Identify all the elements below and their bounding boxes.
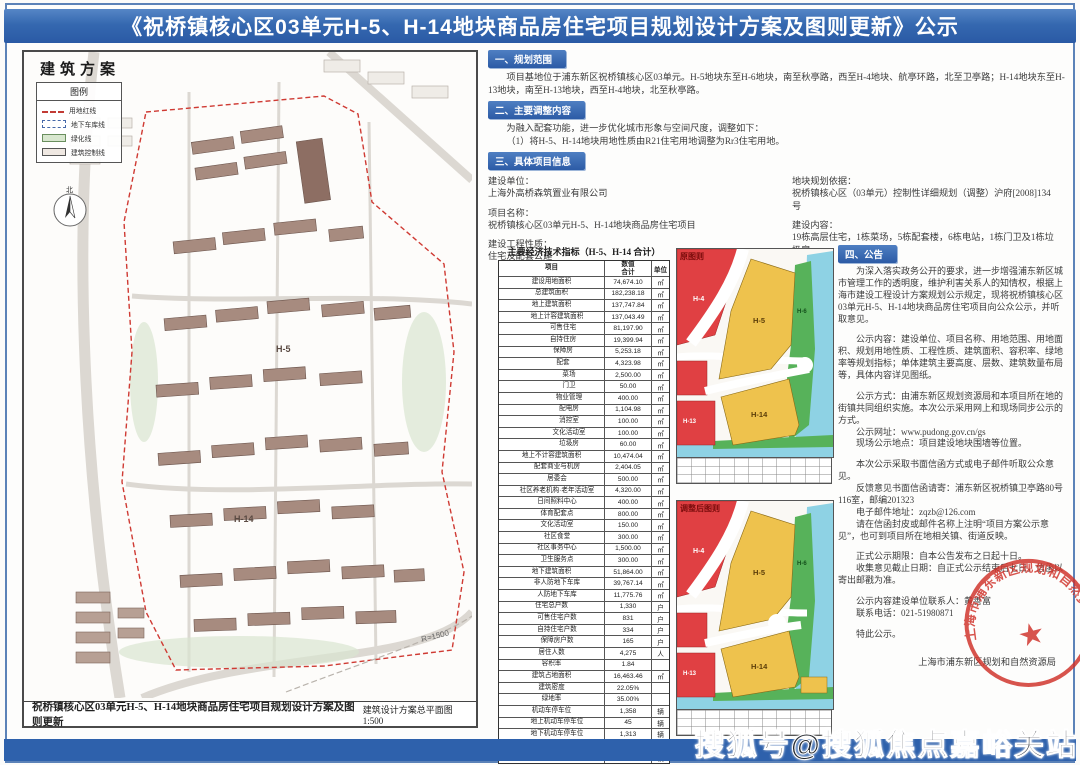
section2-heading: 二、主要调整内容 — [488, 101, 585, 119]
svg-text:H-6: H-6 — [797, 561, 807, 567]
row-unit: ㎡ — [652, 578, 669, 589]
table-row: 保障房 5,253.18 ㎡ — [499, 347, 669, 359]
row-value: 1,500.00 — [605, 544, 652, 555]
row-value: 74,674.10 — [605, 277, 652, 288]
row-unit: ㎡ — [652, 555, 669, 566]
row-value: 81,197.90 — [605, 323, 652, 334]
section2-line2: （1）将H-5、H-14地块用地性质由R21住宅用地调整为Rr3住宅用地。 — [488, 135, 1066, 148]
row-item: 配套 — [499, 358, 605, 369]
table-row: 地上建筑面积 137,747.84 ㎡ — [499, 300, 669, 312]
row-value: 22.05% — [605, 683, 652, 694]
info-value: 祝桥镇核心区（03单元）控制性详细规划（调整）沪府[2008]134号 — [792, 187, 1054, 212]
table-row: 配电房 1,104.98 ㎡ — [499, 405, 669, 417]
table-row: 自持住宅户数 334 户 — [499, 625, 669, 637]
info-item: 建设单位： 上海外高桥森筑置业有限公司 — [488, 173, 788, 199]
row-value: 50.00 — [605, 381, 652, 392]
row-item: 地上不计容建筑面积 — [499, 451, 605, 462]
row-unit: ㎡ — [652, 509, 669, 520]
table-row: 菜场 2,500.00 ㎡ — [499, 370, 669, 382]
table-row: 体育配套点 800.00 ㎡ — [499, 509, 669, 521]
legend-item: 绿化线 — [37, 129, 121, 143]
row-unit: ㎡ — [652, 405, 669, 416]
row-item: 地上机动车停车位 — [499, 718, 605, 729]
row-unit: 户 — [652, 602, 669, 613]
svg-text:H-5: H-5 — [753, 316, 765, 325]
row-value: 2,404.05 — [605, 463, 652, 474]
table-row: 建设用地面积 74,674.10 ㎡ — [499, 277, 669, 289]
row-unit: ㎡ — [652, 532, 669, 543]
row-value: 4,323.98 — [605, 358, 652, 369]
col-item: 项目 — [499, 261, 605, 276]
svg-text:H-4: H-4 — [693, 548, 704, 555]
info-label: 建设单位： — [488, 173, 788, 187]
row-item: 消控室 — [499, 416, 605, 427]
row-item: 社区养老机构·老年活动室 — [499, 486, 605, 497]
issuing-authority: 上海市浦东新区规划和自然资源局 — [838, 654, 1066, 668]
row-value: 100.00 — [605, 428, 652, 439]
poster-title: 《祝桥镇核心区03单元H-5、H-14地块商品房住宅项目规划设计方案及图则更新》… — [121, 11, 959, 41]
row-value: 100.00 — [605, 416, 652, 427]
row-value: 16,463.46 — [605, 671, 652, 682]
svg-text:H-13: H-13 — [683, 419, 697, 425]
info-label: 项目名称： — [488, 205, 788, 219]
row-item: 绿地率 — [499, 694, 605, 705]
row-unit: ㎡ — [652, 370, 669, 381]
table-row: 建筑密度 22.05% — [499, 683, 669, 695]
table-row: 门卫 50.00 ㎡ — [499, 381, 669, 393]
table-row: 社区养老机构·老年活动室 4,320.00 ㎡ — [499, 486, 669, 498]
row-unit: ㎡ — [652, 277, 669, 288]
notice-paragraph: 公示内容建设单位联系人：黄善富 — [838, 596, 1066, 608]
row-unit: ㎡ — [652, 312, 669, 323]
row-unit: ㎡ — [652, 463, 669, 474]
table-row: 居委会 500.00 ㎡ — [499, 474, 669, 486]
row-value: 500.00 — [605, 474, 652, 485]
section-adjustment: 二、主要调整内容 为融入配套功能，进一步优化城市形象与空间尺度，调整如下： （1… — [488, 101, 1066, 148]
svg-text:H-6: H-6 — [797, 309, 807, 315]
row-unit: ㎡ — [652, 358, 669, 369]
section1-heading: 一、规划范围 — [488, 50, 566, 68]
row-unit: ㎡ — [652, 323, 669, 334]
row-item: 物业管理 — [499, 393, 605, 404]
row-value: 182,238.18 — [605, 289, 652, 300]
row-item: 菜场 — [499, 370, 605, 381]
col-value: 数值 合计 — [605, 261, 652, 276]
svg-text:H-5: H-5 — [276, 344, 291, 354]
table-row: 绿地率 35.00% — [499, 694, 669, 706]
zoning-map-adjusted: H-4 H-5 H-14 H-6 H-13 调整后图则 — [676, 500, 834, 710]
watermark-text: 搜狐号@搜狐焦点嘉峪关站 — [695, 720, 1078, 764]
notice-paragraph: 公示内容：建设单位、项目名称、用地范围、用地面积、规划用地性质、工程性质、建筑面… — [838, 334, 1066, 382]
row-value: 4,320.00 — [605, 486, 652, 497]
notice-paragraph: 正式公示期限：自本公告发布之日起十日。 — [838, 551, 1066, 563]
text-sections: 一、规划范围 项目基地位于浦东新区祝桥镇核心区03单元。H-5地块东至H-6地块… — [488, 50, 1066, 272]
row-unit: ㎡ — [652, 590, 669, 601]
table-row: 可售住宅 81,197.90 ㎡ — [499, 323, 669, 335]
row-value: 334 — [605, 625, 652, 636]
row-item: 人防地下车库 — [499, 590, 605, 601]
table-row: 自持住房 19,399.94 ㎡ — [499, 335, 669, 347]
row-item: 机动车停车位 — [499, 706, 605, 717]
row-item: 建筑密度 — [499, 683, 605, 694]
row-value: 150.00 — [605, 520, 652, 531]
row-item: 建筑占地面积 — [499, 671, 605, 682]
row-unit: 户 — [652, 636, 669, 647]
row-item: 文化活动室 — [499, 428, 605, 439]
zoning-map-original-drawing: H-4 H-5 H-14 H-6 H-13 原图则 — [677, 249, 833, 457]
table-row: 容积率 1.84 — [499, 660, 669, 672]
table-row: 可售住宅户数 831 户 — [499, 613, 669, 625]
svg-text:H-4: H-4 — [693, 296, 704, 303]
notice-paragraph: 公示方式：由浦东新区规划资源局和本项目所在地的街镇共同组织实施。本次公示采用网上… — [838, 391, 1066, 427]
row-unit — [652, 683, 669, 694]
row-item: 建设用地面积 — [499, 277, 605, 288]
notice-paragraph: 请在信函封皮或邮件名称上注明“项目方案公示意见”，也可到项目所在地相关镇、街道反… — [838, 519, 1066, 543]
svg-text:原图则: 原图则 — [680, 251, 704, 261]
indicator-table-column: 主要经济技术指标（H-5、H-14 合计） 项目 数值 合计 单位 建设用地面积… — [498, 245, 670, 764]
section1-body: 项目基地位于浦东新区祝桥镇核心区03单元。H-5地块东至H-6地块，南至秋亭路，… — [488, 71, 1066, 97]
legend-item-label: 建筑控制线 — [71, 147, 105, 157]
legend-item: 建筑控制线 — [37, 143, 121, 162]
table-row: 社区事务中心 1,500.00 ㎡ — [499, 544, 669, 556]
row-unit: ㎡ — [652, 335, 669, 346]
notice-paragraph: 反馈意见书面信函请寄：浦东新区祝桥镇卫亭路80号116室，邮编201323 — [838, 483, 1066, 507]
row-unit: ㎡ — [652, 428, 669, 439]
row-value: 4,275 — [605, 648, 652, 659]
row-value: 60.00 — [605, 439, 652, 450]
row-item: 保障房 — [499, 347, 605, 358]
indicator-table-body: 建设用地面积 74,674.10 ㎡ 总建筑面积 182,238.18 ㎡ 地上… — [499, 277, 669, 763]
info-label: 建设内容： — [792, 217, 1054, 231]
col-unit: 单位 — [652, 261, 669, 276]
row-item: 居委会 — [499, 474, 605, 485]
table-row: 配套商业与机房 2,404.05 ㎡ — [499, 463, 669, 475]
row-unit: ㎡ — [652, 520, 669, 531]
row-unit: ㎡ — [652, 671, 669, 682]
row-value: 19,399.94 — [605, 335, 652, 346]
row-value: 35.00% — [605, 694, 652, 705]
table-row: 地上机动车停车位 45 辆 — [499, 718, 669, 730]
row-value: 165 — [605, 636, 652, 647]
row-item: 地上建筑面积 — [499, 300, 605, 311]
section2-line1: 为融入配套功能，进一步优化城市形象与空间尺度，调整如下： — [488, 122, 1066, 135]
row-value: 1,358 — [605, 706, 652, 717]
row-unit: 户 — [652, 625, 669, 636]
table-row: 人防地下车库 11,775.76 ㎡ — [499, 590, 669, 602]
table-row: 卫生服务点 300.00 ㎡ — [499, 555, 669, 567]
table-row: 地上计容建筑面积 137,043.49 ㎡ — [499, 312, 669, 324]
site-plan-panel: H-5 H-14 R=1500 北 建筑方案 图例 用地红线 地下 — [22, 50, 478, 728]
row-unit — [652, 660, 669, 671]
row-unit: ㎡ — [652, 347, 669, 358]
row-unit: ㎡ — [652, 544, 669, 555]
row-item: 自持住宅户数 — [499, 625, 605, 636]
notice-paragraphs: 为深入落实政务公开的要求，进一步增强浦东新区城市管理工作的透明度，维护利害关系人… — [838, 266, 1066, 641]
legend-title: 图例 — [37, 83, 121, 101]
info-value: 上海外高桥森筑置业有限公司 — [488, 187, 788, 199]
row-item: 地上计容建筑面积 — [499, 312, 605, 323]
table-row: 保障房户数 165 户 — [499, 636, 669, 648]
row-item: 配套商业与机房 — [499, 463, 605, 474]
table-row: 社区食堂 300.00 ㎡ — [499, 532, 669, 544]
row-value: 300.00 — [605, 532, 652, 543]
legend-item: 用地红线 — [37, 101, 121, 115]
table-row: 文化活动室 150.00 ㎡ — [499, 520, 669, 532]
row-value: 51,864.00 — [605, 567, 652, 578]
row-item: 垃圾房 — [499, 439, 605, 450]
row-value: 800.00 — [605, 509, 652, 520]
notice-paragraph: 本次公示采取书面信函方式或电子邮件听取公众意见。 — [838, 459, 1066, 483]
section-planning-scope: 一、规划范围 项目基地位于浦东新区祝桥镇核心区03单元。H-5地块东至H-6地块… — [488, 50, 1066, 97]
plan-caption-title: 祝桥镇核心区03单元H-5、H-14地块商品房住宅项目规划设计方案及图则更新 — [32, 699, 363, 729]
row-unit: ㎡ — [652, 497, 669, 508]
row-item: 地下建筑面积 — [499, 567, 605, 578]
row-value: 1.84 — [605, 660, 652, 671]
row-unit: ㎡ — [652, 486, 669, 497]
svg-text:北: 北 — [66, 186, 73, 194]
zoning-map-adjusted-drawing: H-4 H-5 H-14 H-6 H-13 调整后图则 — [677, 501, 833, 709]
row-item: 非人防地下车库 — [499, 578, 605, 589]
table-row: 配套 4,323.98 ㎡ — [499, 358, 669, 370]
table-row: 地下建筑面积 51,864.00 ㎡ — [499, 567, 669, 579]
section4-heading: 四、公告 — [838, 245, 897, 263]
table-row: 消控室 100.00 ㎡ — [499, 416, 669, 428]
table-row: 非人防地下车库 39,767.14 ㎡ — [499, 578, 669, 590]
indicator-table: 项目 数值 合计 单位 建设用地面积 74,674.10 ㎡ 总建筑面积 182… — [498, 260, 670, 764]
row-unit: ㎡ — [652, 451, 669, 462]
row-item: 门卫 — [499, 381, 605, 392]
legend-swatch-icon — [42, 111, 64, 113]
row-item: 日间照料中心 — [499, 497, 605, 508]
row-item: 住宅总户数 — [499, 602, 605, 613]
info-item: 地块规划依据： 祝桥镇核心区（03单元）控制性详细规划（调整）沪府[2008]1… — [792, 173, 1054, 212]
row-unit: 人 — [652, 648, 669, 659]
table-row: 文化活动室 100.00 ㎡ — [499, 428, 669, 440]
zoning-map-original: H-4 H-5 H-14 H-6 H-13 原图则 — [676, 248, 834, 458]
row-item: 卫生服务点 — [499, 555, 605, 566]
legend-items: 用地红线 地下车库线 绿化线 建筑控制线 — [37, 101, 121, 162]
table-row: 总建筑面积 182,238.18 ㎡ — [499, 289, 669, 301]
legend-swatch-icon — [42, 120, 66, 128]
row-unit: ㎡ — [652, 567, 669, 578]
row-value: 400.00 — [605, 497, 652, 508]
row-value: 10,474.04 — [605, 451, 652, 462]
svg-text:H-5: H-5 — [753, 568, 765, 577]
table-row: 居住人数 4,275 人 — [499, 648, 669, 660]
row-value: 831 — [605, 613, 652, 624]
legend-item-label: 用地红线 — [69, 105, 96, 115]
table-row: 物业管理 400.00 ㎡ — [499, 393, 669, 405]
svg-text:H-14: H-14 — [751, 410, 768, 419]
row-value: 45 — [605, 718, 652, 729]
legend-item: 地下车库线 — [37, 115, 121, 129]
row-item: 配电房 — [499, 405, 605, 416]
map-indicator-strip — [676, 458, 832, 484]
legend-item-label: 地下车库线 — [71, 119, 105, 129]
row-item: 可售住宅 — [499, 323, 605, 334]
row-item: 总建筑面积 — [499, 289, 605, 300]
row-item: 社区食堂 — [499, 532, 605, 543]
plan-caption-bar: 祝桥镇核心区03单元H-5、H-14地块商品房住宅项目规划设计方案及图则更新 建… — [24, 701, 476, 726]
svg-text:H-14: H-14 — [751, 662, 768, 671]
row-value: 2,500.00 — [605, 370, 652, 381]
row-value: 11,775.76 — [605, 590, 652, 601]
svg-text:H-14: H-14 — [234, 514, 254, 524]
notice-paragraph: 联系电话：021-51980871 — [838, 608, 1066, 620]
legend-item-label: 绿化线 — [71, 133, 91, 143]
plan-heading: 建筑方案 — [40, 58, 120, 79]
plan-caption-scale: 建筑设计方案总平面图 1:500 — [363, 703, 468, 726]
row-item: 容积率 — [499, 660, 605, 671]
row-value: 300.00 — [605, 555, 652, 566]
row-value: 39,767.14 — [605, 578, 652, 589]
notice-paragraph: 公示网址：www.pudong.gov.cn/gs — [838, 427, 1066, 439]
row-unit: 辆 — [652, 706, 669, 717]
info-label: 地块规划依据： — [792, 173, 1054, 187]
row-item: 可售住宅户数 — [499, 613, 605, 624]
indicator-table-title: 主要经济技术指标（H-5、H-14 合计） — [498, 245, 670, 258]
svg-text:R=1500: R=1500 — [420, 628, 450, 644]
row-item: 体育配套点 — [499, 509, 605, 520]
notice-paragraph: 电子邮件地址：zqzb@126.com — [838, 507, 1066, 519]
row-unit: ㎡ — [652, 439, 669, 450]
svg-text:H-13: H-13 — [683, 671, 697, 677]
row-item: 居住人数 — [499, 648, 605, 659]
row-unit: ㎡ — [652, 300, 669, 311]
row-item: 保障房户数 — [499, 636, 605, 647]
row-item: 自持住房 — [499, 335, 605, 346]
table-row: 日间照料中心 400.00 ㎡ — [499, 497, 669, 509]
notice-paragraph: 收集意见截止日期：自正式公示结束后七日，信函以寄出邮戳为准。 — [838, 563, 1066, 587]
row-value: 137,747.84 — [605, 300, 652, 311]
row-unit: 辆 — [652, 718, 669, 729]
legend-swatch-icon — [42, 134, 66, 142]
indicator-table-header: 项目 数值 合计 单位 — [499, 261, 669, 277]
table-row: 住宅总户数 1,330 户 — [499, 602, 669, 614]
notice-paragraph: 为深入落实政务公开的要求，进一步增强浦东新区城市管理工作的透明度，维护利害关系人… — [838, 266, 1066, 325]
notice-column: 四、公告 为深入落实政务公开的要求，进一步增强浦东新区城市管理工作的透明度，维护… — [838, 245, 1066, 668]
info-value: 祝桥镇核心区03单元H-5、H-14地块商品房住宅项目 — [488, 219, 788, 231]
row-unit: ㎡ — [652, 289, 669, 300]
notice-paragraph: 特此公示。 — [838, 629, 1066, 641]
svg-text:调整后图则: 调整后图则 — [680, 503, 720, 513]
row-unit: ㎡ — [652, 381, 669, 392]
table-row: 地上不计容建筑面积 10,474.04 ㎡ — [499, 451, 669, 463]
table-row: 机动车停车位 1,358 辆 — [499, 706, 669, 718]
poster-title-bar: 《祝桥镇核心区03单元H-5、H-14地块商品房住宅项目规划设计方案及图则更新》… — [4, 9, 1076, 43]
row-unit: ㎡ — [652, 393, 669, 404]
row-value: 400.00 — [605, 393, 652, 404]
info-item: 项目名称： 祝桥镇核心区03单元H-5、H-14地块商品房住宅项目 — [488, 205, 788, 231]
row-value: 5,253.18 — [605, 347, 652, 358]
table-row: 垃圾房 60.00 ㎡ — [499, 439, 669, 451]
legend-swatch-icon — [42, 148, 66, 156]
row-item: 文化活动室 — [499, 520, 605, 531]
row-item: 社区事务中心 — [499, 544, 605, 555]
table-row: 建筑占地面积 16,463.46 ㎡ — [499, 671, 669, 683]
row-unit: 户 — [652, 613, 669, 624]
section3-heading: 三、具体项目信息 — [488, 152, 585, 170]
row-unit: ㎡ — [652, 474, 669, 485]
row-unit: ㎡ — [652, 416, 669, 427]
notice-paragraph: 现场公示地点：项目建设地块围墙等位置。 — [838, 438, 1066, 450]
row-value: 1,104.98 — [605, 405, 652, 416]
zoning-maps-column: H-4 H-5 H-14 H-6 H-13 原图则 H-4 H-5 — [676, 248, 832, 736]
row-value: 1,330 — [605, 602, 652, 613]
plan-legend: 图例 用地红线 地下车库线 绿化线 — [36, 82, 122, 163]
row-unit — [652, 694, 669, 705]
row-value: 137,043.49 — [605, 312, 652, 323]
